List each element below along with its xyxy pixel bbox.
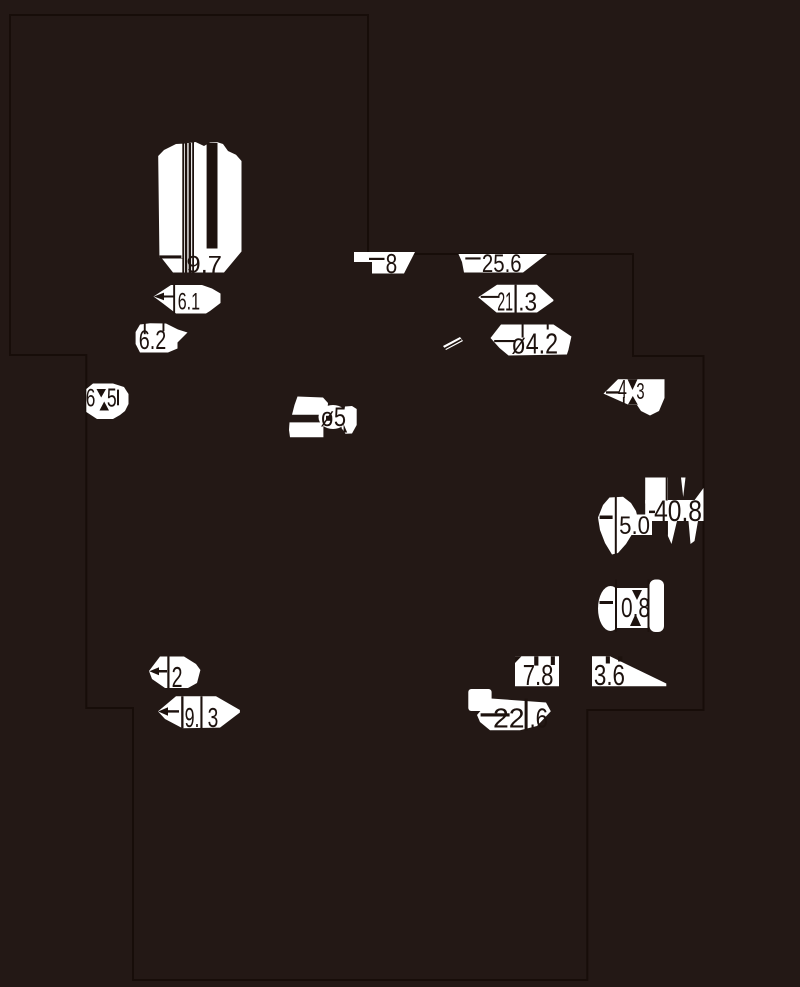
svg-text:3: 3: [636, 378, 644, 404]
svg-text:ø4.2: ø4.2: [512, 329, 559, 361]
svg-text:4: 4: [618, 376, 627, 404]
svg-text:6: 6: [86, 384, 96, 412]
svg-text:6.2: 6.2: [139, 324, 167, 355]
svg-text:5: 5: [107, 382, 117, 412]
svg-text:5.0: 5.0: [619, 513, 650, 540]
svg-text:7.8: 7.8: [523, 659, 554, 691]
svg-text:ø5: ø5: [321, 402, 347, 432]
svg-text:25.6: 25.6: [482, 250, 522, 278]
svg-text:9.7: 9.7: [187, 251, 223, 278]
svg-text:3.6: 3.6: [594, 660, 625, 692]
svg-text:22: 22: [493, 702, 525, 734]
svg-text:8: 8: [386, 248, 398, 279]
svg-text:2: 2: [172, 662, 183, 694]
svg-text:6.1: 6.1: [178, 288, 200, 315]
svg-text:9.: 9.: [185, 702, 200, 733]
svg-text:.3: .3: [518, 286, 537, 316]
svg-text:40.8: 40.8: [654, 495, 702, 528]
svg-text:21: 21: [497, 286, 513, 316]
svg-text:.6: .6: [530, 702, 549, 734]
svg-text:3: 3: [208, 702, 219, 733]
